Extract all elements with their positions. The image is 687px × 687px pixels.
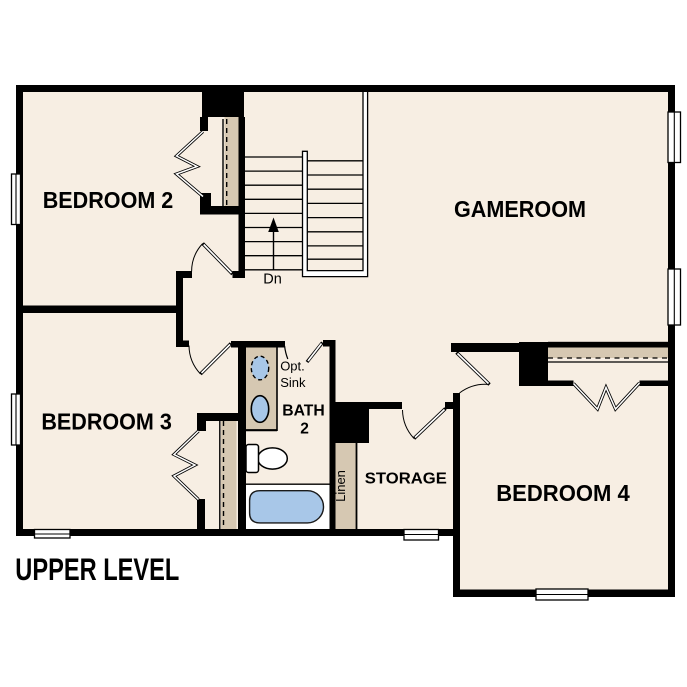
svg-text:GAMEROOM: GAMEROOM: [454, 196, 586, 222]
svg-text:Opt.: Opt.: [280, 359, 305, 374]
svg-text:2: 2: [300, 421, 309, 438]
svg-text:STORAGE: STORAGE: [365, 471, 447, 488]
svg-text:Sink: Sink: [280, 375, 306, 390]
svg-text:Dn: Dn: [263, 272, 282, 288]
svg-text:Linen: Linen: [333, 470, 348, 502]
svg-text:BATH: BATH: [282, 403, 325, 420]
svg-text:BEDROOM 4: BEDROOM 4: [496, 480, 630, 506]
svg-text:UPPER LEVEL: UPPER LEVEL: [15, 551, 179, 587]
svg-text:BEDROOM 2: BEDROOM 2: [43, 187, 174, 213]
svg-text:BEDROOM 3: BEDROOM 3: [41, 409, 172, 435]
